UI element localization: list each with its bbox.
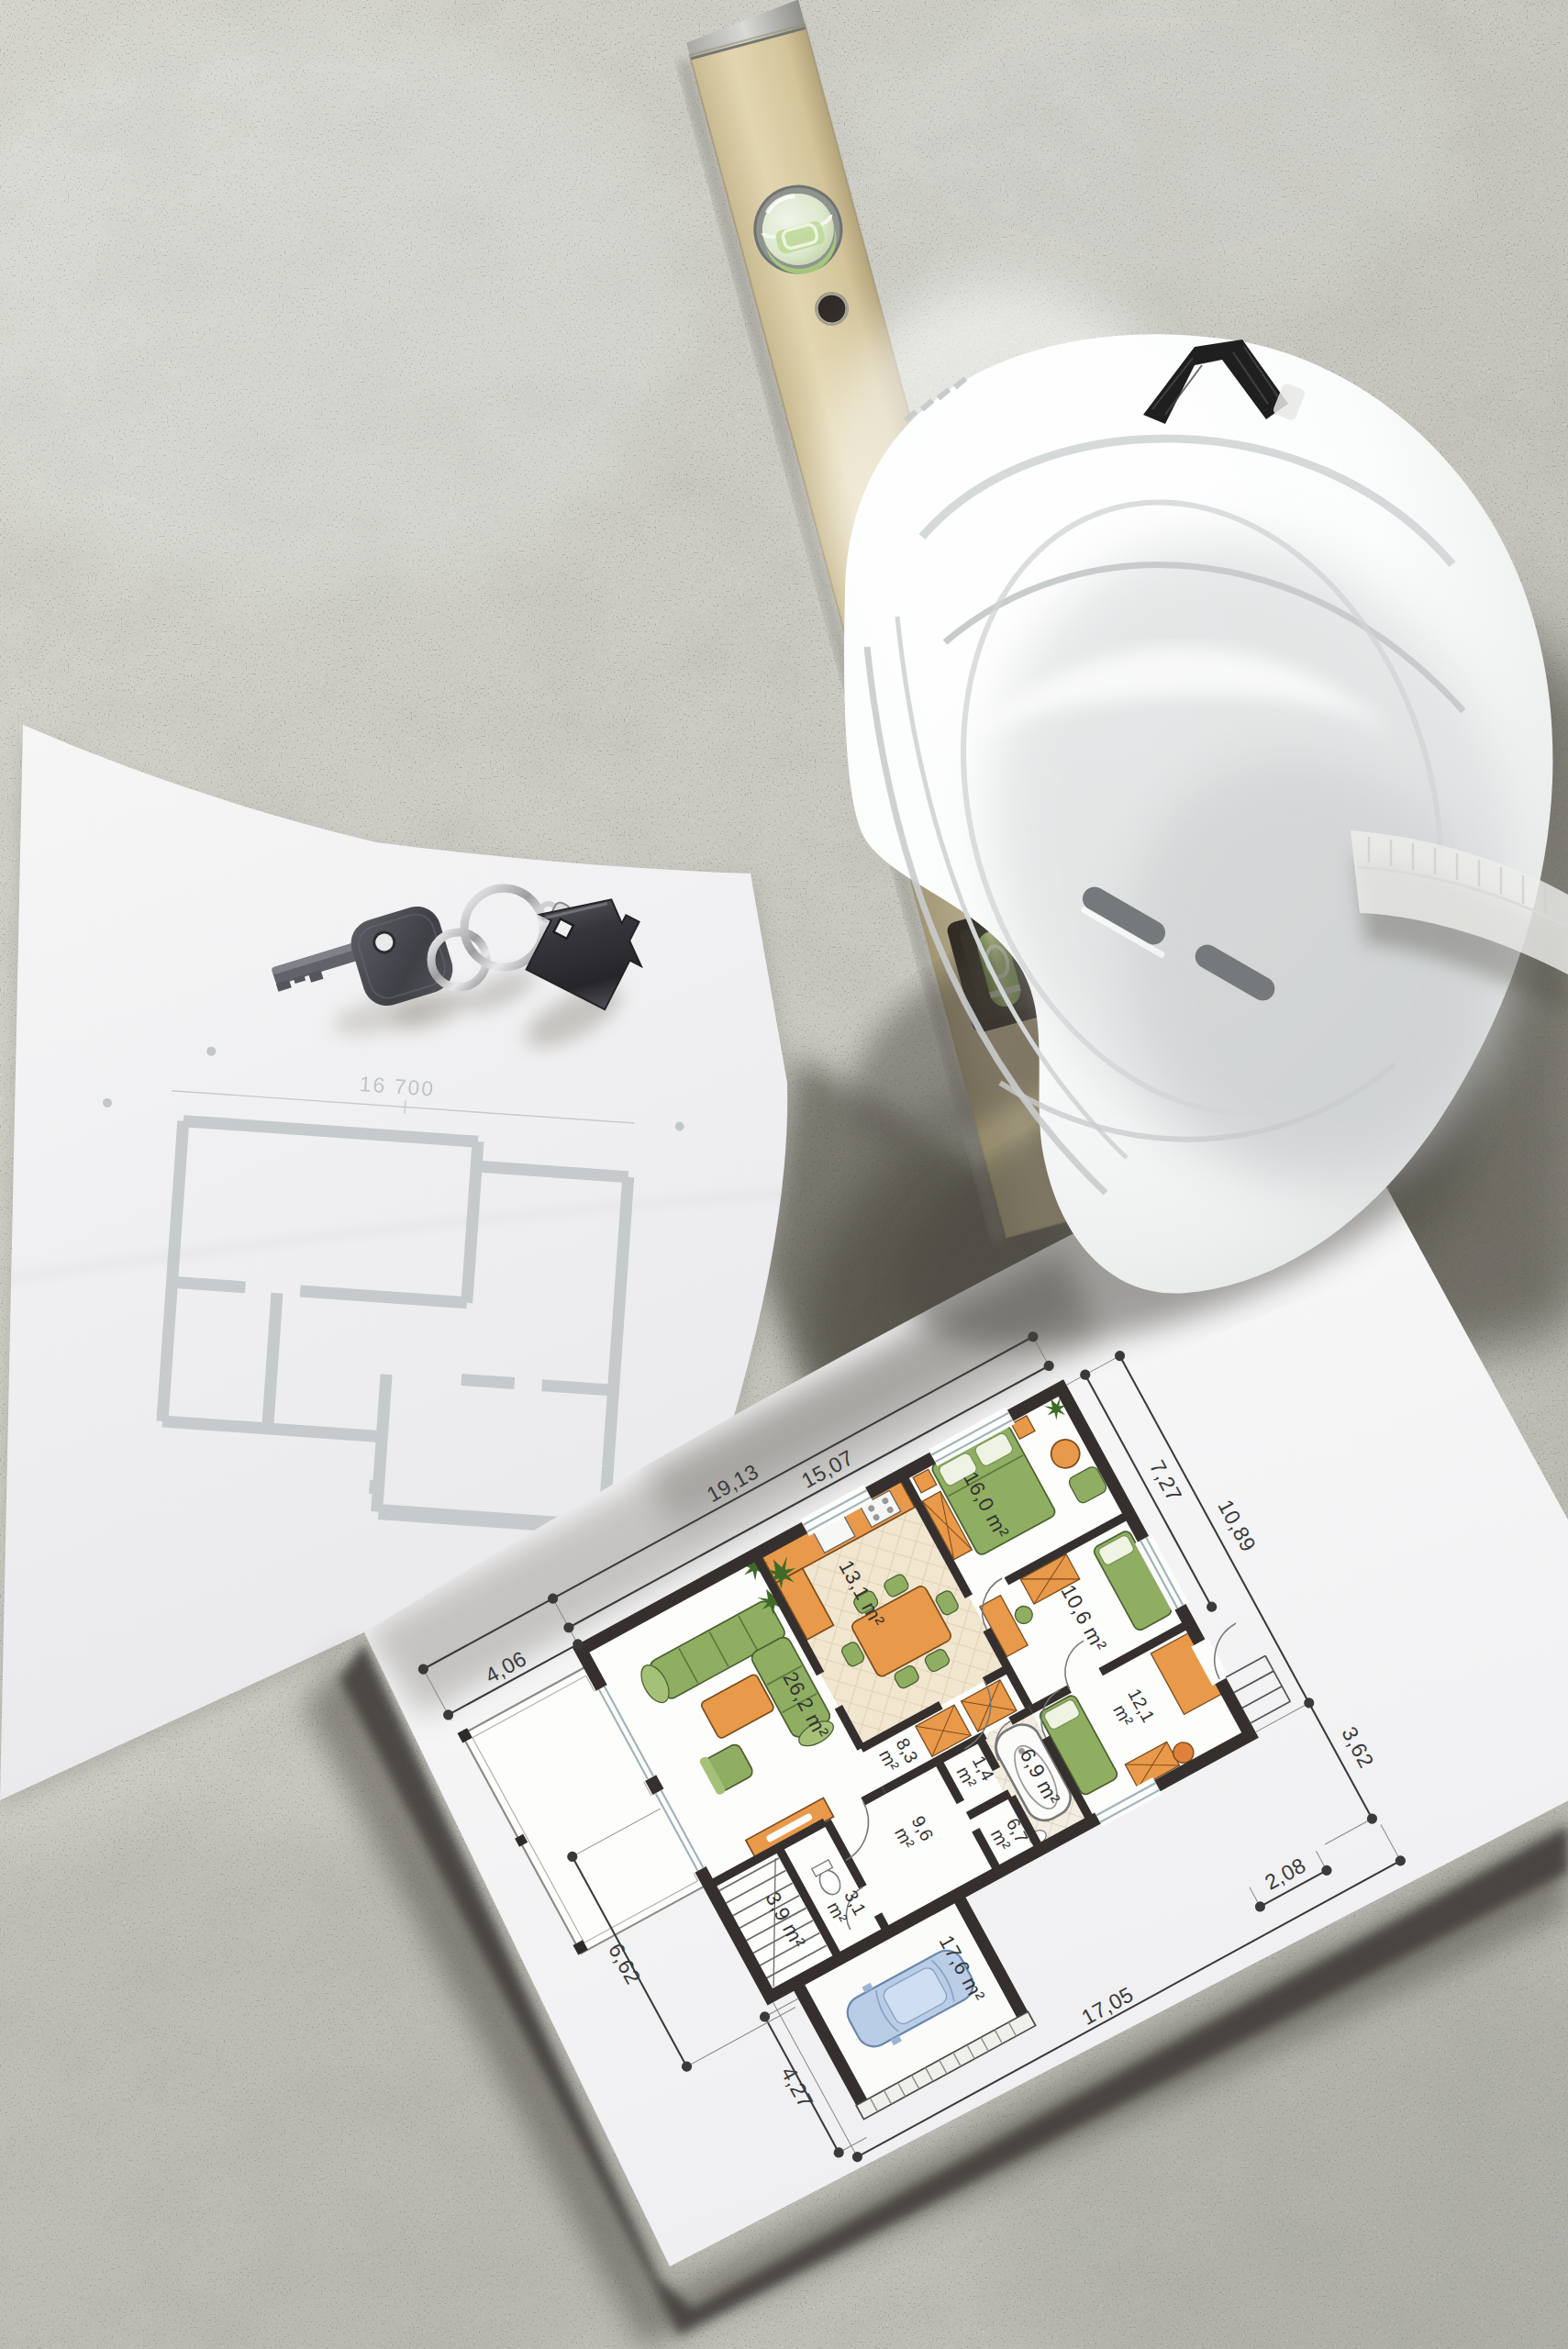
photo-stage: 16 700 (0, 0, 1568, 2349)
photo-canvas: 16 700 (0, 0, 1568, 2349)
